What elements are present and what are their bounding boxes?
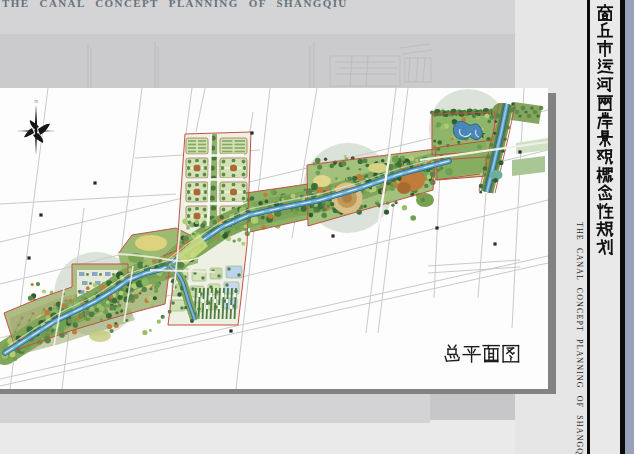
svg-text:N: N <box>34 99 38 104</box>
